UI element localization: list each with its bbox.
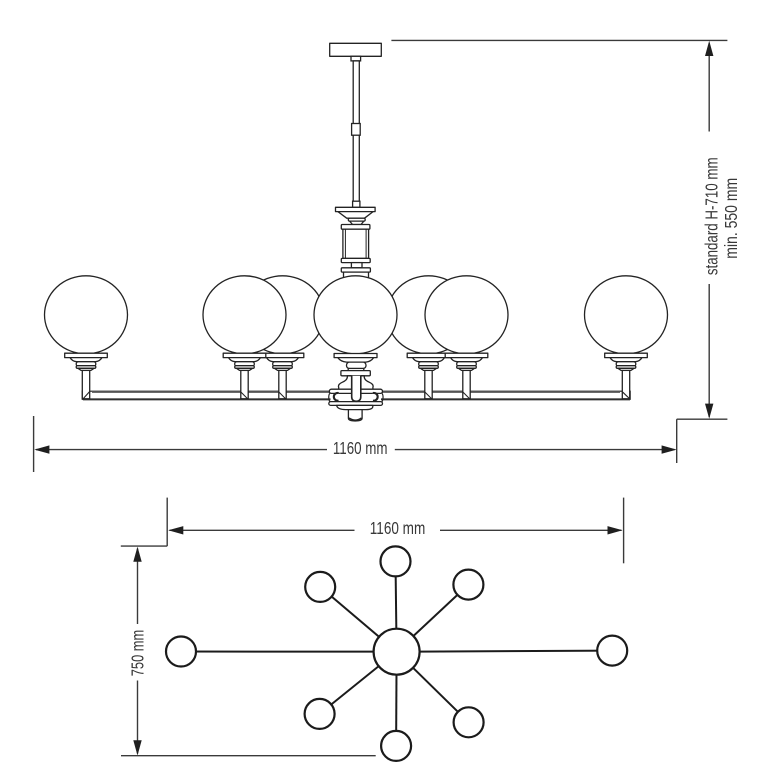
svg-text:1160 mm: 1160 mm — [370, 518, 426, 538]
svg-text:1160 mm: 1160 mm — [333, 438, 388, 458]
svg-text:750 mm: 750 mm — [128, 630, 148, 677]
svg-text:min. 550 mm: min. 550 mm — [721, 178, 741, 259]
svg-text:standard H-710 mm: standard H-710 mm — [702, 157, 722, 275]
